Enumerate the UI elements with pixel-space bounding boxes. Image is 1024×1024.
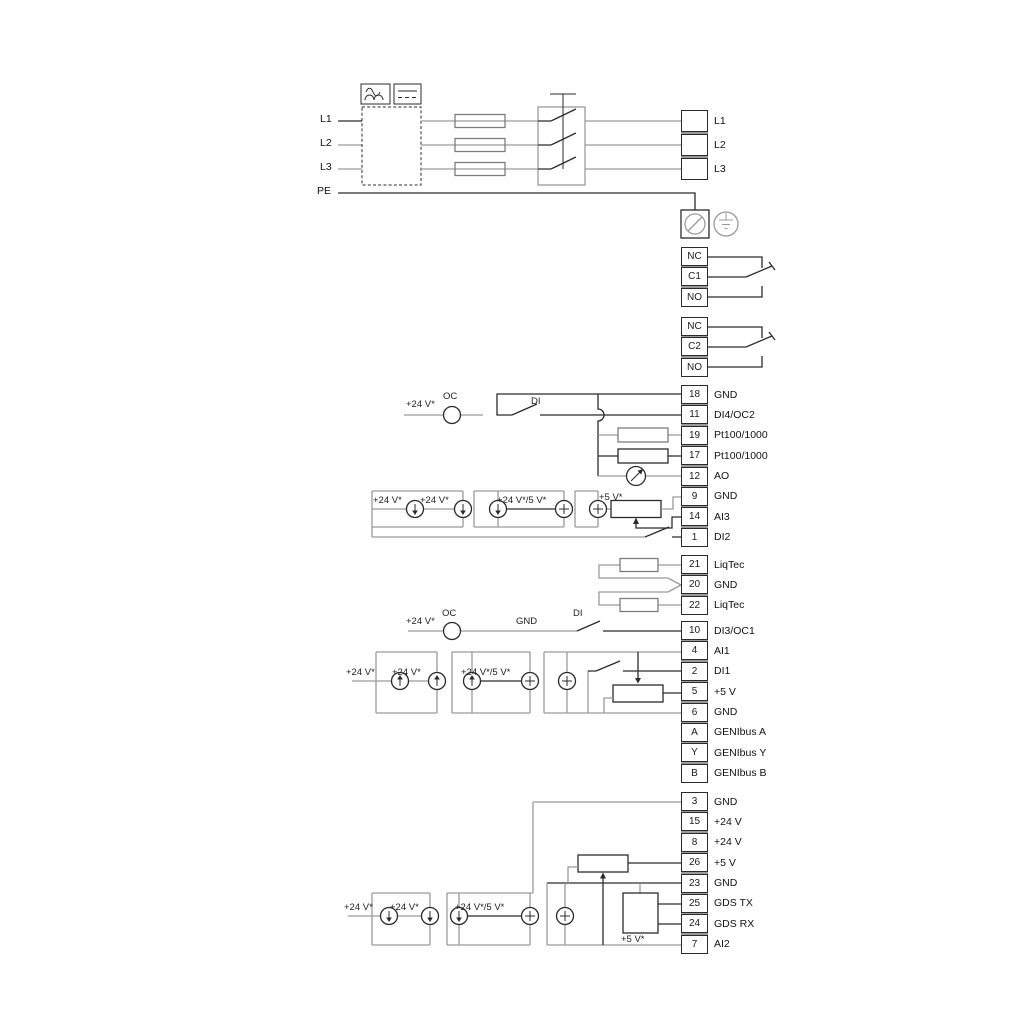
terminal-row: 12AO: [681, 467, 708, 486]
terminal-row: 25GDS TX: [681, 894, 708, 913]
terminal-row: 18GND: [681, 385, 708, 404]
di3-switch: [577, 621, 681, 631]
terminal-label: GDS RX: [714, 918, 754, 930]
terminal-label: LiqTec: [714, 599, 744, 611]
terminal-number-cell: 14: [681, 507, 708, 526]
terminal-label: +24 V: [714, 836, 742, 848]
terminal-strip-mains: L1L2L3: [681, 110, 708, 180]
potentiometer-ai1: [613, 685, 663, 702]
terminal-row: C2: [681, 337, 708, 356]
terminal-label: DI3/OC1: [714, 625, 755, 637]
terminal-label: GDS TX: [714, 897, 753, 909]
annotation-oc: OC: [443, 391, 457, 402]
io-c-wiring: [348, 802, 681, 945]
terminal-number-cell: 21: [681, 555, 708, 574]
pt100-resistor-1: [618, 428, 668, 442]
terminal-row: NC: [681, 317, 708, 336]
terminal-row: L2: [681, 134, 708, 156]
phase-label-l1: L1: [320, 114, 332, 125]
terminal-number-cell: 4: [681, 641, 708, 660]
terminal-label: DI4/OC2: [714, 409, 755, 421]
annotation-plus24v: +24 V*: [406, 616, 435, 627]
terminal-label: GND: [714, 579, 737, 591]
switch-contacts: [538, 109, 576, 169]
terminal-number-cell: 26: [681, 853, 708, 872]
terminal-row: 21LiqTec: [681, 555, 708, 574]
relay1-contacts: [708, 257, 775, 297]
terminal-number-cell: 9: [681, 487, 708, 506]
terminal-row: 20GND: [681, 575, 708, 594]
terminal-number-cell: 2: [681, 662, 708, 681]
terminal-label: GND: [714, 389, 737, 401]
terminal-row: 26+5 V: [681, 853, 708, 872]
annotation-plus24v: +24 V*: [344, 902, 373, 913]
annotation-oc: OC: [442, 608, 456, 619]
terminal-number-cell: 6: [681, 703, 708, 722]
terminal-number-cell: 19: [681, 426, 708, 445]
terminal-label: L3: [714, 163, 726, 175]
terminal-label: Pt100/1000: [714, 450, 768, 462]
terminal-label: +5 V: [714, 857, 736, 869]
terminal-row: 23GND: [681, 874, 708, 893]
terminal-number-cell: 3: [681, 792, 708, 811]
phase-label-l2: L2: [320, 138, 332, 149]
annotation-gnd: GND: [516, 616, 537, 627]
terminal-row: 19Pt100/1000: [681, 426, 708, 445]
terminal-label: AI3: [714, 511, 730, 523]
terminal-label: AO: [714, 470, 729, 482]
terminal-number-cell: [681, 158, 708, 180]
terminal-row: 5+5 V: [681, 682, 708, 701]
terminal-strip-io-c: 3GND15+24 V8+24 V26+5 V23GND25GDS TX24GD…: [681, 792, 708, 954]
ac-symbol-box: [361, 84, 390, 104]
terminal-row: NC: [681, 247, 708, 266]
terminal-number-cell: NC: [681, 317, 708, 336]
terminal-number-cell: 23: [681, 874, 708, 893]
terminal-label: GENIbus B: [714, 767, 767, 779]
terminal-strip-liqtec: 21LiqTec20GND22LiqTec: [681, 555, 708, 615]
emc-filter-box: [362, 107, 421, 185]
terminal-row: 11DI4/OC2: [681, 405, 708, 424]
pe-wire: [338, 193, 695, 210]
terminal-row: 2DI1: [681, 662, 708, 681]
terminal-label: DI2: [714, 531, 730, 543]
terminal-number-cell: 1: [681, 528, 708, 547]
terminal-label: LiqTec: [714, 559, 744, 571]
terminal-number-cell: C1: [681, 267, 708, 286]
mains-power-section: [338, 84, 738, 238]
terminal-number-cell: B: [681, 764, 708, 783]
liqtec-sensor-1: [620, 559, 658, 572]
annotation-plus5v: +5 V*: [621, 934, 645, 945]
terminal-row: 10DI3/OC1: [681, 621, 708, 640]
terminal-row: 15+24 V: [681, 812, 708, 831]
gds-sensor-box: [623, 893, 658, 933]
terminal-number-cell: Y: [681, 743, 708, 762]
annotation-plus24v: +24 V*: [390, 902, 419, 913]
terminal-number-cell: 5: [681, 682, 708, 701]
terminal-label: DI1: [714, 665, 730, 677]
terminal-row: 7AI2: [681, 935, 708, 954]
wiring-diagram: L1 L2 L3 PE L1L2L3 NCC1NO NCC2NO 18GND11…: [0, 0, 1024, 1024]
terminal-number-cell: NO: [681, 358, 708, 377]
potentiometer-ai3: [611, 501, 661, 518]
di4-switch: [497, 394, 681, 415]
terminal-strip-io-b: 10DI3/OC14AI12DI15+5 V6GNDAGENIbus AYGEN…: [681, 621, 708, 783]
terminal-label: +24 V: [714, 816, 742, 828]
terminal-row: 17Pt100/1000: [681, 446, 708, 465]
terminal-number-cell: 11: [681, 405, 708, 424]
terminal-label: +5 V: [714, 686, 736, 698]
terminal-label: GENIbus A: [714, 726, 766, 738]
terminal-label: L2: [714, 139, 726, 151]
terminal-number-cell: A: [681, 723, 708, 742]
terminal-row: 1DI2: [681, 528, 708, 547]
terminal-label: GND: [714, 796, 737, 808]
phase-label-l3: L3: [320, 162, 332, 173]
dc-symbol-box: [394, 84, 421, 104]
terminal-number-cell: C2: [681, 337, 708, 356]
disconnect-switch-box: [538, 107, 585, 185]
terminal-row: NO: [681, 288, 708, 307]
terminal-number-cell: 25: [681, 894, 708, 913]
phase-label-pe: PE: [317, 186, 331, 197]
terminal-row: 3GND: [681, 792, 708, 811]
terminal-number-cell: 8: [681, 833, 708, 852]
terminal-row: L1: [681, 110, 708, 132]
terminal-row: 22LiqTec: [681, 596, 708, 615]
terminal-number-cell: 22: [681, 596, 708, 615]
open-collector-icon: [444, 623, 461, 640]
terminal-label: AI2: [714, 938, 730, 950]
annotation-plus24v-5v: +24 V*/5 V*: [455, 902, 504, 913]
liqtec-wiring: [599, 559, 681, 612]
terminal-number-cell: 17: [681, 446, 708, 465]
liqtec-sensor-2: [620, 599, 658, 612]
terminal-row: 14AI3: [681, 507, 708, 526]
relay2-contacts: [708, 327, 775, 367]
terminal-label: L1: [714, 115, 726, 127]
terminal-row: 4AI1: [681, 641, 708, 660]
terminal-row: 9GND: [681, 487, 708, 506]
terminal-label: GENIbus Y: [714, 747, 766, 759]
terminal-row: 24GDS RX: [681, 914, 708, 933]
terminal-label: GND: [714, 490, 737, 502]
annotation-plus24v-5v: +24 V*/5 V*: [497, 495, 546, 506]
terminal-row: L3: [681, 158, 708, 180]
open-collector-icon: [444, 407, 461, 424]
terminal-number-cell: [681, 110, 708, 132]
terminal-number-cell: 10: [681, 621, 708, 640]
annotation-plus24v: +24 V*: [346, 667, 375, 678]
terminal-strip-io-a: 18GND11DI4/OC219Pt100/100017Pt100/100012…: [681, 385, 708, 547]
terminal-number-cell: 24: [681, 914, 708, 933]
terminal-row: 6GND: [681, 703, 708, 722]
annotation-plus5v: +5 V*: [599, 492, 623, 503]
annotation-plus24v-5v: +24 V*/5 V*: [461, 667, 510, 678]
terminal-row: NO: [681, 358, 708, 377]
diagram-graphics: [0, 0, 1024, 1024]
di1-switch: [588, 661, 681, 671]
terminal-number-cell: 7: [681, 935, 708, 954]
terminal-label: Pt100/1000: [714, 429, 768, 441]
annotation-plus24v: +24 V*: [420, 495, 449, 506]
switch-linkage: [550, 94, 576, 169]
terminal-number-cell: NO: [681, 288, 708, 307]
terminal-row: BGENIbus B: [681, 764, 708, 783]
terminal-row: AGENIbus A: [681, 723, 708, 742]
terminal-label: AI1: [714, 645, 730, 657]
io-a-wiring: [372, 394, 681, 537]
terminal-number-cell: 20: [681, 575, 708, 594]
terminal-row: YGENIbus Y: [681, 743, 708, 762]
terminal-label: GND: [714, 877, 737, 889]
terminal-number-cell: 18: [681, 385, 708, 404]
terminal-row: 8+24 V: [681, 833, 708, 852]
pt100-resistor-2: [618, 449, 668, 463]
terminal-number-cell: 12: [681, 467, 708, 486]
annotation-plus24v: +24 V*: [406, 399, 435, 410]
potentiometer-ai2: [578, 855, 628, 872]
terminal-label: GND: [714, 706, 737, 718]
terminal-number-cell: [681, 134, 708, 156]
annotation-plus24v: +24 V*: [392, 667, 421, 678]
annotation-di: DI: [573, 608, 583, 619]
terminal-strip-relay2: NCC2NO: [681, 317, 708, 377]
terminal-strip-relay1: NCC1NO: [681, 247, 708, 307]
terminal-row: C1: [681, 267, 708, 286]
terminal-number-cell: NC: [681, 247, 708, 266]
terminal-number-cell: 15: [681, 812, 708, 831]
annotation-plus24v: +24 V*: [373, 495, 402, 506]
annotation-di: DI: [531, 396, 541, 407]
